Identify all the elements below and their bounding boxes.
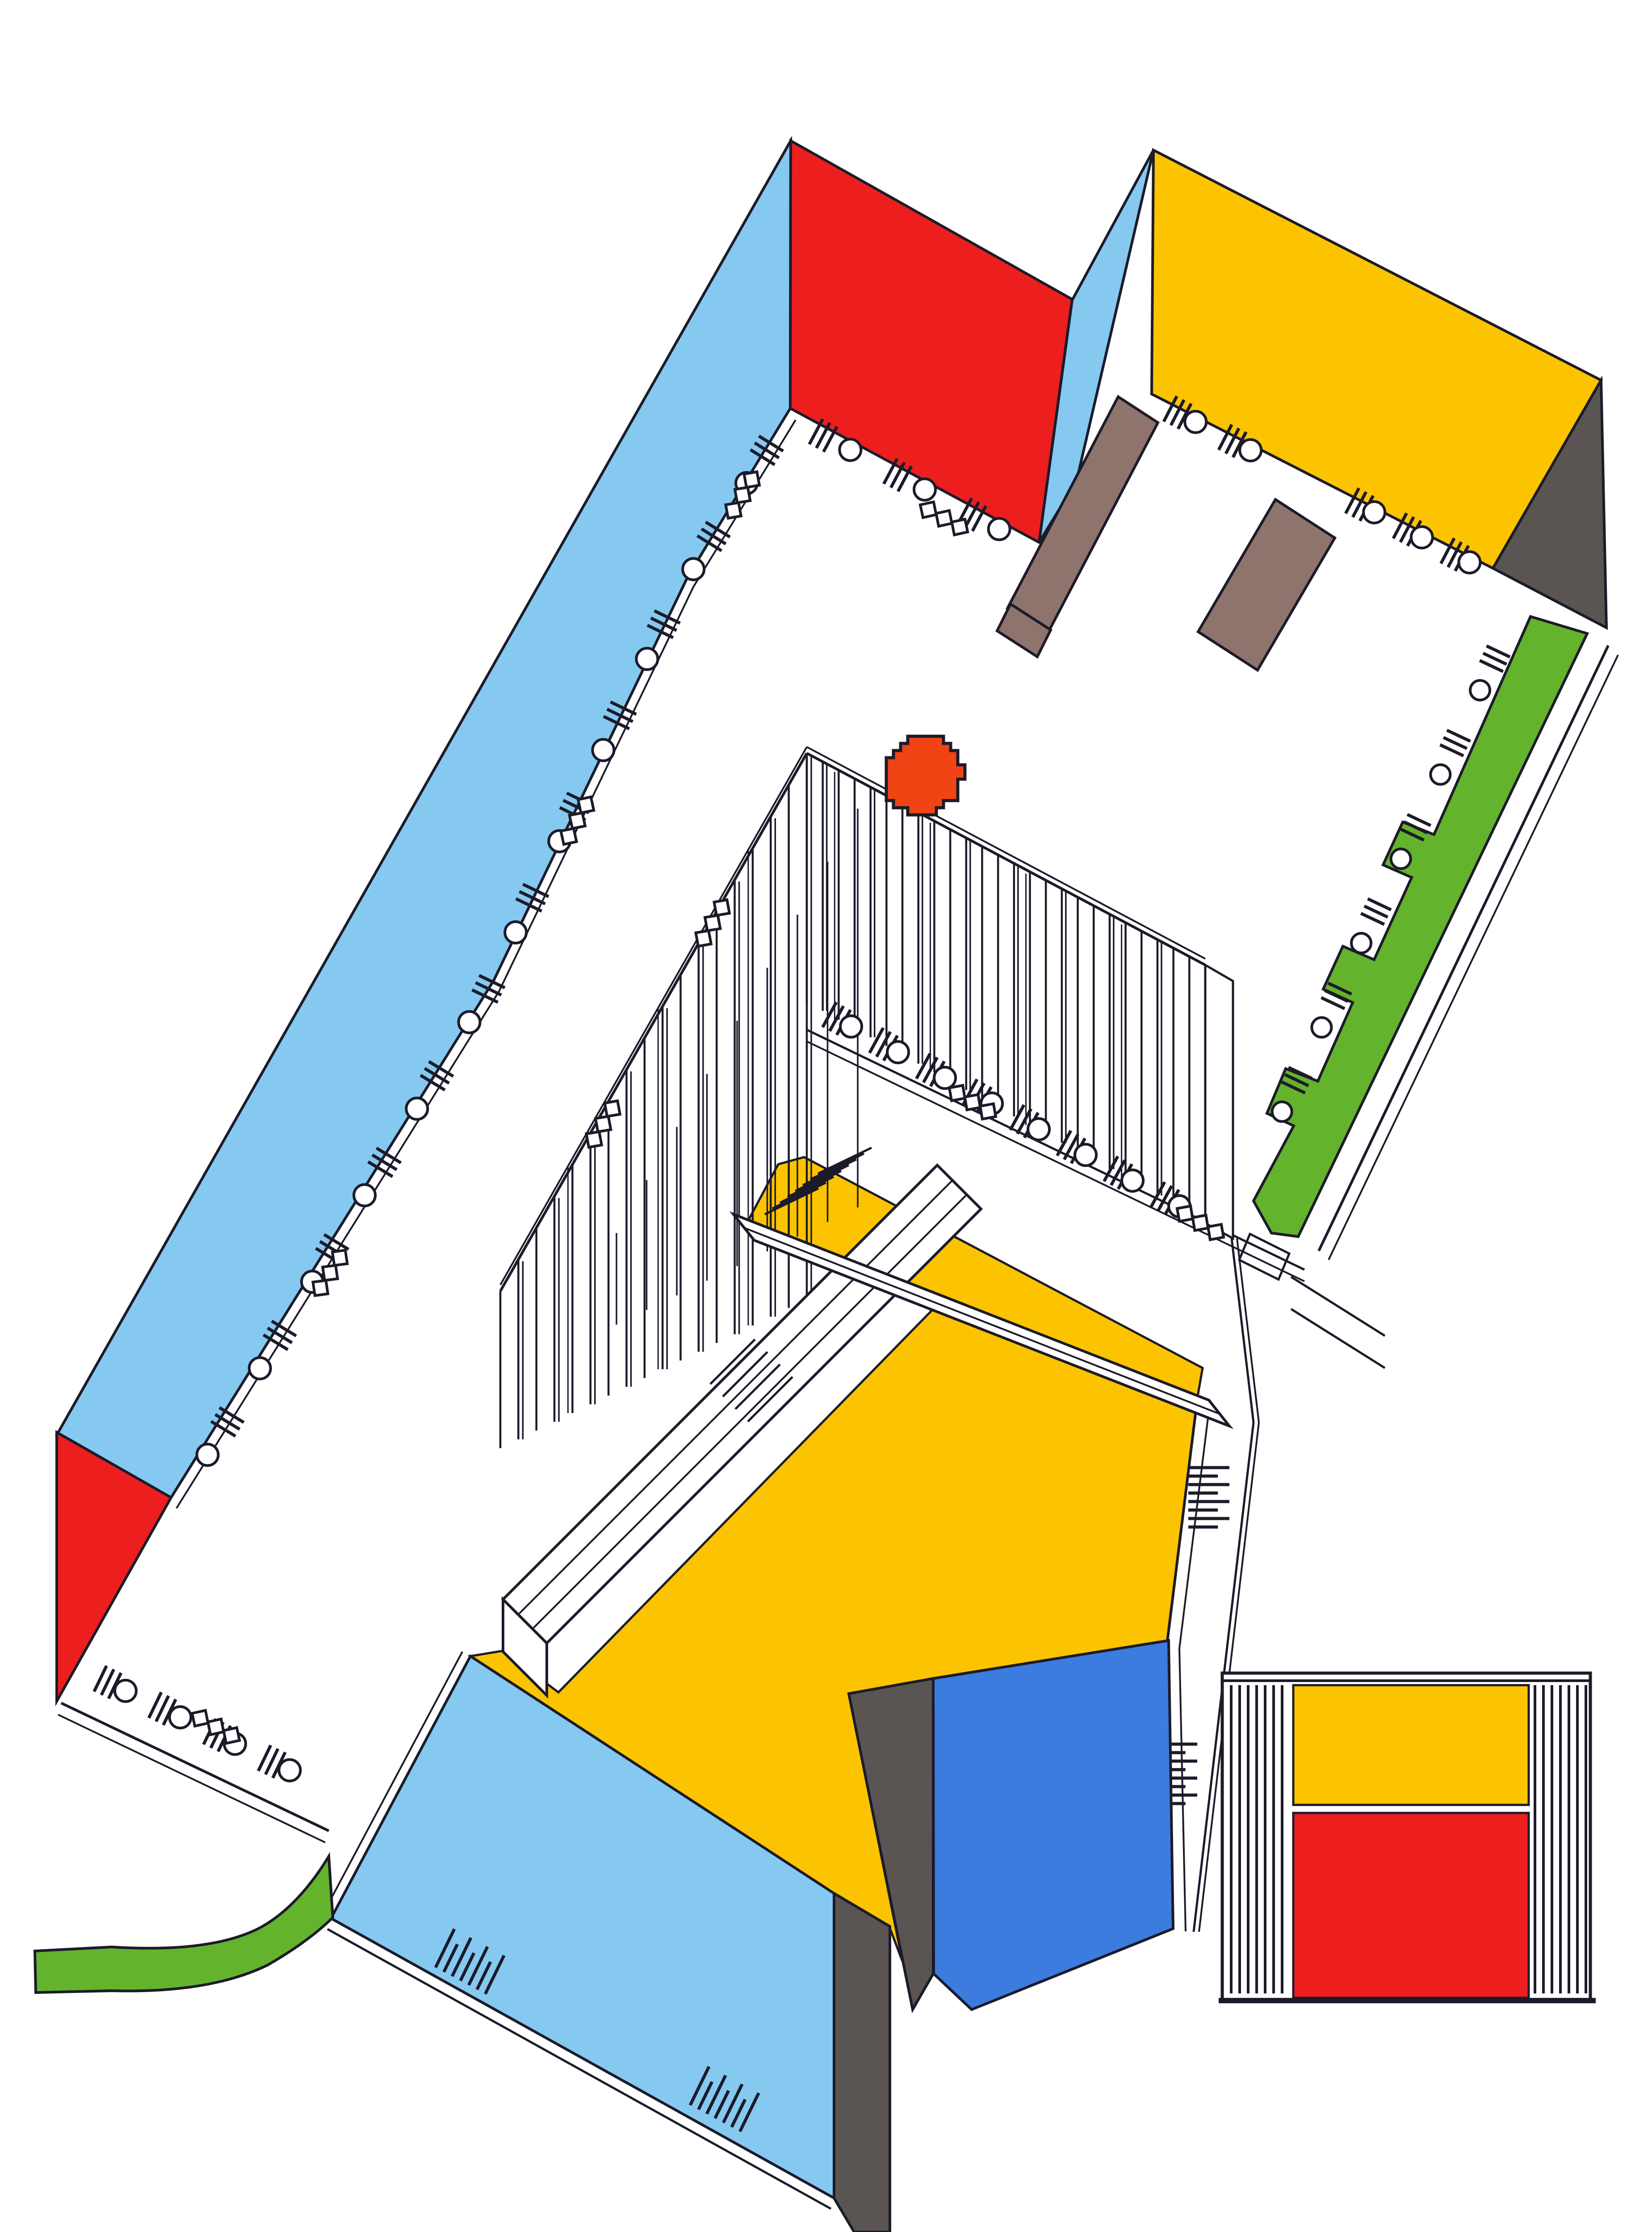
inset-yellow-panel bbox=[1293, 1685, 1529, 1805]
curved-green-road bbox=[35, 1856, 333, 1993]
northwest-gallery-wall bbox=[57, 141, 796, 1508]
stair-east-upper bbox=[1188, 1468, 1229, 1527]
court-south-wall bbox=[933, 1640, 1173, 2010]
south-block-side bbox=[834, 1893, 890, 2232]
rotunda-column bbox=[886, 736, 965, 815]
esplanade-colonnade-row bbox=[1272, 646, 1510, 1121]
drawing-canvas bbox=[0, 0, 1652, 2232]
east-esplanade bbox=[1239, 617, 1618, 1368]
inset-red-panel bbox=[1293, 1813, 1529, 1998]
axonometric-drawing bbox=[0, 0, 1652, 2232]
